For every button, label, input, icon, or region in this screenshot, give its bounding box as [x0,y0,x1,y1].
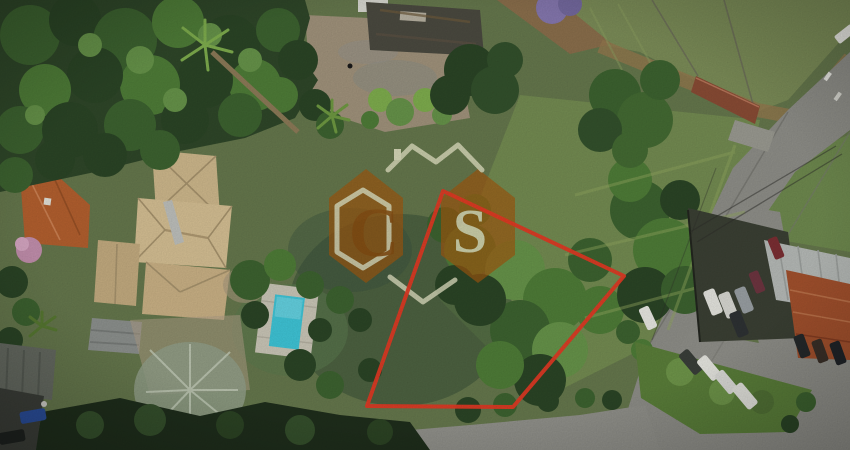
vignette [0,0,850,450]
aerial-photo-canvas: C S [0,0,850,450]
aerial-photo: C S [0,0,850,450]
